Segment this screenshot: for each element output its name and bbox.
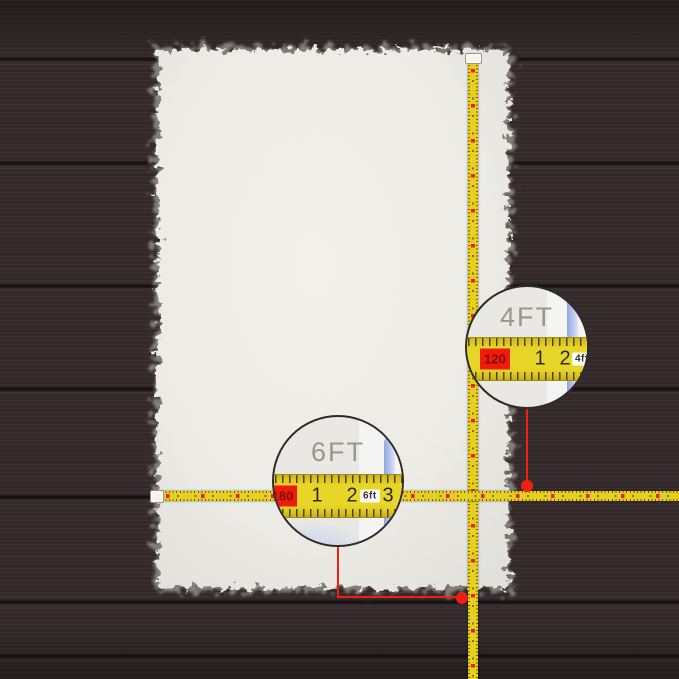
leader-line-6ft-vertical xyxy=(337,545,339,598)
dimension-label-4ft: 4FT xyxy=(467,304,587,331)
tick-number: 3 xyxy=(382,485,393,508)
tick-number: 2 xyxy=(346,485,357,508)
tick-number: 1 xyxy=(311,485,322,508)
cm-marker-6ft: 180 xyxy=(272,486,297,507)
magnifier-4ft: 4FT 120 1 2 4ft 3 xyxy=(465,285,589,409)
magnified-rug-edge-blue-soft xyxy=(278,521,370,547)
leader-line-6ft-horizontal xyxy=(338,596,460,598)
ft-marker-4ft: 4ft xyxy=(572,353,589,366)
magnifier-6ft: 6FT 180 1 2 6ft 3 xyxy=(272,415,404,547)
magnified-tape-6ft: 180 1 2 6ft 3 xyxy=(272,474,404,518)
tape-end-hook-top xyxy=(465,53,482,64)
leader-line-4ft xyxy=(526,408,528,487)
horizontal-measuring-tape xyxy=(151,491,679,501)
product-photo-canvas: { "annotations": { "width_callout": { "l… xyxy=(0,0,679,679)
measure-dot-6ft xyxy=(456,592,468,604)
dimension-label-6ft: 6FT xyxy=(274,439,402,466)
tick-number: 2 xyxy=(559,348,570,371)
tick-number: 1 xyxy=(534,348,545,371)
tape-end-hook-left xyxy=(150,490,164,503)
cm-marker-4ft: 120 xyxy=(480,349,510,370)
ft-marker-6ft: 6ft xyxy=(360,490,380,503)
measure-dot-4ft xyxy=(521,480,533,492)
magnified-tape-4ft: 120 1 2 4ft 3 xyxy=(465,337,589,381)
